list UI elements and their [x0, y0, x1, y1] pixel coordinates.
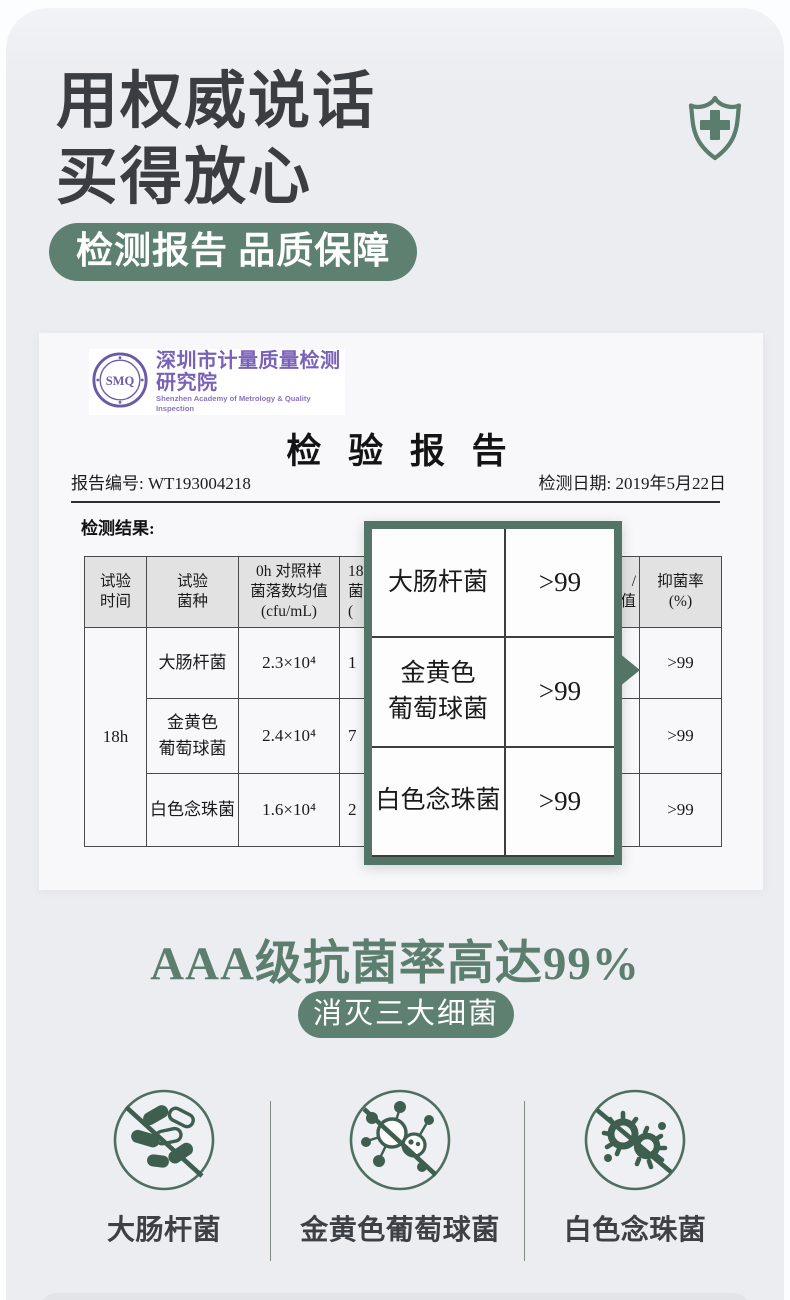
header-test-species: 试验菌种	[147, 557, 239, 628]
magnifier-species: 大肠杆菌	[372, 529, 506, 636]
callout-arrow-icon	[614, 649, 640, 691]
cell-0h-count: 1.6×10⁴	[239, 774, 340, 847]
magnifier-species: 白色念珠菌	[372, 748, 506, 855]
cell-species: 白色念珠菌	[147, 774, 239, 847]
product-detail-page: 用权威说话 买得放心 检测报告 品质保障 SMQ	[0, 0, 790, 1300]
magnifier-row: 大肠杆菌 >99	[372, 529, 614, 638]
magnifier-species: 金黄色葡萄球菌	[372, 638, 506, 745]
hero-title: 用权威说话 买得放心	[56, 64, 376, 216]
magnified-results-callout: 大肠杆菌 >99 金黄色葡萄球菌 >99 白色念珠菌 >99	[364, 521, 622, 865]
bacteria-item-staph: 金黄色葡萄球菌	[297, 1088, 503, 1248]
agency-name-en: Shenzhen Academy of Metrology & Quality …	[156, 394, 345, 414]
staphylococcus-icon	[297, 1088, 503, 1192]
hero-badge: 检测报告 品质保障	[49, 223, 417, 281]
hero-title-line2: 买得放心	[56, 140, 376, 216]
cell-0h-count: 2.4×10⁴	[239, 699, 340, 774]
vertical-divider	[524, 1101, 525, 1261]
magnifier-value: >99	[506, 748, 614, 855]
report-meta: 报告编号: WT193004218 检测日期: 2019年5月22日	[39, 469, 763, 494]
cell-rate: >99	[640, 774, 722, 847]
header-inhibition-rate: 抑菌率(%)	[640, 557, 722, 628]
svg-text:SMQ: SMQ	[106, 373, 135, 387]
magnifier-value: >99	[506, 529, 614, 636]
smq-seal-icon: SMQ	[91, 351, 149, 414]
bacteria-item-ecoli: 大肠杆菌	[61, 1088, 267, 1248]
cell-rate: >99	[640, 699, 722, 774]
cell-rate: >99	[640, 628, 722, 699]
vertical-divider	[270, 1101, 271, 1261]
candida-icon	[532, 1088, 738, 1192]
cell-0h-count: 2.3×10⁴	[239, 628, 340, 699]
header-test-time: 试验时间	[85, 557, 147, 628]
cell-test-time: 18h	[85, 628, 147, 847]
hero-title-line1: 用权威说话	[56, 64, 376, 140]
magnifier-row: 白色念珠菌 >99	[372, 748, 614, 857]
agency-name-cn: 深圳市计量质量检测研究院	[156, 350, 345, 394]
cell-species: 大肠杆菌	[147, 628, 239, 699]
report-divider	[71, 501, 720, 503]
summary-headline: AAA级抗菌率高达99%	[6, 924, 784, 993]
test-date: 检测日期: 2019年5月22日	[539, 469, 726, 494]
magnifier-value: >99	[506, 638, 614, 745]
cell-species: 金黄色葡萄球菌	[147, 699, 239, 774]
report-number: 报告编号: WT193004218	[71, 469, 251, 494]
agency-logo: SMQ 深圳市计量质量检测研究院 Shenzhen Academy of Met…	[89, 349, 345, 415]
section-card: 用权威说话 买得放心 检测报告 品质保障 SMQ	[6, 8, 784, 1300]
header-0h-count: 0h 对照样菌落数均值(cfu/mL)	[239, 557, 340, 628]
bacteria-label: 白色念珠菌	[532, 1208, 738, 1248]
magnifier-row: 金黄色葡萄球菌 >99	[372, 638, 614, 747]
report-title: 检 验 报 告	[39, 423, 763, 474]
bacteria-label: 金黄色葡萄球菌	[297, 1208, 503, 1248]
bacteria-label: 大肠杆菌	[61, 1208, 267, 1248]
summary-badge: 消灭三大细菌	[298, 991, 514, 1038]
shield-cross-icon	[682, 92, 748, 164]
next-section-card-edge	[41, 1293, 749, 1300]
bacteria-item-candida: 白色念珠菌	[532, 1088, 738, 1248]
ecoli-bacteria-icon	[61, 1088, 267, 1192]
agency-names: 深圳市计量质量检测研究院 Shenzhen Academy of Metrolo…	[156, 350, 345, 414]
results-label: 检测结果:	[81, 514, 155, 539]
